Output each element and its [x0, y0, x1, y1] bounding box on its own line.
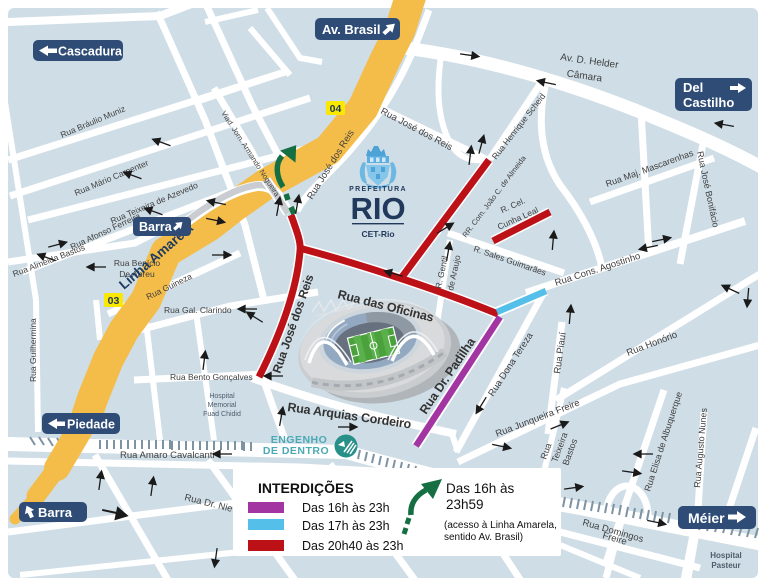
- svg-text:Rua Amaro Cavalcanti: Rua Amaro Cavalcanti: [120, 450, 215, 461]
- svg-text:23h59: 23h59: [446, 497, 484, 512]
- svg-text:Das 17h às 23h: Das 17h às 23h: [302, 519, 390, 533]
- svg-text:Rua Gal. Clarindo: Rua Gal. Clarindo: [164, 305, 232, 315]
- svg-text:(acesso à Linha Amarela,: (acesso à Linha Amarela,: [444, 520, 557, 531]
- svg-text:Das 20h40 às 23h: Das 20h40 às 23h: [302, 539, 404, 553]
- svg-text:Barra: Barra: [139, 220, 173, 234]
- svg-text:Fuad Chidid: Fuad Chidid: [203, 411, 241, 418]
- svg-text:Das 16h às: Das 16h às: [446, 481, 515, 496]
- svg-text:CET-Rio: CET-Rio: [361, 229, 394, 239]
- svg-text:Hospital: Hospital: [209, 393, 235, 400]
- svg-text:INTERDIÇÕES: INTERDIÇÕES: [258, 479, 354, 496]
- svg-text:Rua Bento Gonçalves: Rua Bento Gonçalves: [170, 372, 253, 382]
- svg-text:Av. Brasil: Av. Brasil: [322, 22, 381, 37]
- svg-text:DE DENTRO: DE DENTRO: [263, 445, 329, 457]
- svg-text:Rua Guilhermina: Rua Guilhermina: [28, 318, 38, 382]
- svg-text:Méier: Méier: [688, 510, 725, 526]
- svg-text:04: 04: [330, 103, 342, 115]
- svg-text:Del: Del: [683, 80, 703, 95]
- svg-text:Barra: Barra: [38, 505, 73, 520]
- svg-text:Pasteur: Pasteur: [711, 561, 740, 570]
- svg-text:RIO: RIO: [350, 191, 405, 226]
- svg-text:Piedade: Piedade: [67, 418, 115, 432]
- svg-text:Cascadura: Cascadura: [58, 45, 123, 59]
- svg-text:Das 16h às 23h: Das 16h às 23h: [302, 501, 390, 515]
- svg-text:03: 03: [108, 295, 120, 307]
- svg-text:Hospital: Hospital: [710, 551, 742, 560]
- svg-text:Castilho: Castilho: [683, 95, 734, 110]
- svg-text:Memorial: Memorial: [208, 402, 237, 409]
- svg-text:sentido Av. Brasil): sentido Av. Brasil): [444, 532, 523, 543]
